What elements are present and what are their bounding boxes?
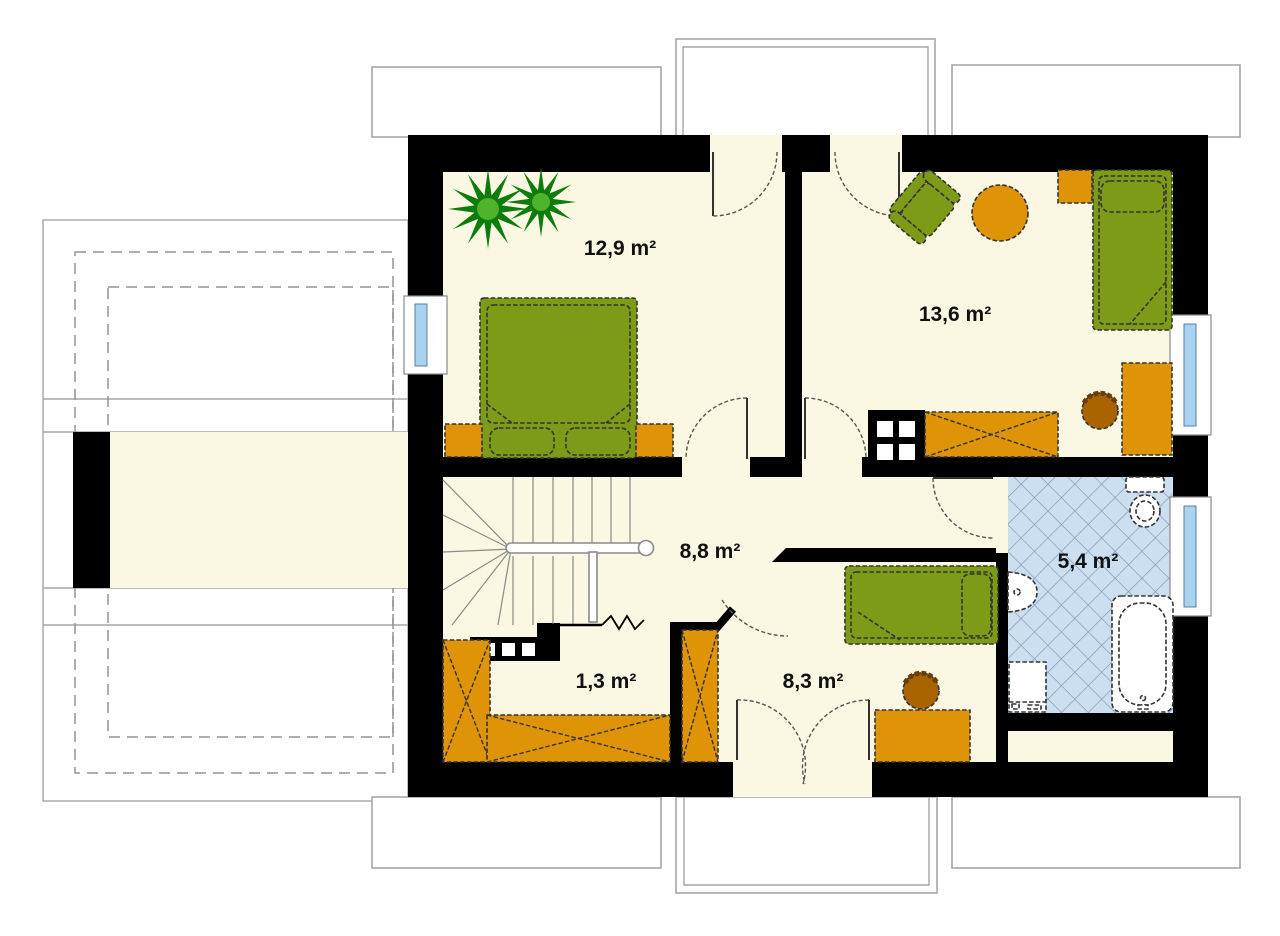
- wardrobe-top-right: [925, 412, 1058, 457]
- wall-right-middle: [1173, 432, 1208, 498]
- dormer-bottom: [676, 797, 937, 893]
- wall-top-right: [902, 135, 1208, 172]
- desk-bottom: [875, 710, 970, 762]
- chimney: [868, 410, 925, 477]
- chimney-flue: [877, 444, 893, 460]
- wardrobe-closet-vertical: [443, 640, 490, 762]
- desk-chair-bottom: [903, 673, 939, 709]
- wall-hall-top-left: [408, 457, 682, 477]
- nightstand: [1058, 170, 1092, 203]
- wall-room83-top: [772, 548, 996, 562]
- chimney-flue: [899, 421, 915, 437]
- roof-plane-top-left: [372, 67, 661, 137]
- parapet-opening: [502, 643, 515, 656]
- window-right-bathroom: [1170, 497, 1211, 616]
- floor-plan-drawing: 12,9 m² 13,6 m² 8,8 m² 5,4 m² 1,3 m² 8,3…: [0, 0, 1280, 936]
- window-left: [404, 296, 447, 374]
- nightstand: [445, 424, 482, 457]
- room-label-hall: 8,8 m²: [680, 540, 741, 563]
- floor-plan-page: 12,9 m² 13,6 m² 8,8 m² 5,4 m² 1,3 m² 8,3…: [0, 0, 1280, 936]
- wall-left-upper: [408, 135, 443, 298]
- room-label-bedroom-top-left: 12,9 m²: [584, 237, 656, 260]
- room-label-closet: 1,3 m²: [576, 670, 637, 693]
- wall-top-pier: [782, 135, 830, 172]
- double-bed: [480, 298, 637, 458]
- nightstand: [636, 424, 673, 457]
- wall-left-lower: [408, 372, 443, 797]
- room-label-bathroom: 5,4 m²: [1058, 550, 1119, 573]
- wardrobe-room83: [682, 630, 718, 762]
- roof-plane-top-right: [952, 65, 1240, 137]
- wall-bedroom-divider: [785, 172, 802, 477]
- desk-chair-top: [1082, 393, 1118, 429]
- wall-bottom-left: [408, 762, 733, 797]
- stair-inner-rail: [589, 552, 597, 622]
- chimney-flue: [877, 421, 893, 437]
- stair-parapet-stub: [537, 623, 560, 661]
- roof-plane-bottom-right: [952, 797, 1240, 868]
- chimney-flue: [899, 444, 915, 460]
- round-table: [972, 185, 1028, 241]
- wall-bathroom-bottom: [1008, 713, 1173, 731]
- washing-machine-icon: [1009, 662, 1046, 712]
- stair-handrail: [506, 543, 646, 553]
- wall-top-left: [408, 135, 710, 172]
- single-bed-bottom: [845, 566, 998, 644]
- bathtub-icon: [1112, 596, 1173, 712]
- dormer-top: [676, 39, 935, 137]
- wardrobe-closet-horizontal: [487, 715, 670, 762]
- roof-plane-bottom-left: [372, 797, 661, 868]
- single-bed-top: [1093, 170, 1172, 330]
- desk-top-right: [1122, 363, 1172, 455]
- terrace-floor: [110, 432, 408, 588]
- parapet-opening: [522, 643, 535, 656]
- room-label-bedroom-top-right: 13,6 m²: [919, 303, 991, 326]
- wall-room83-left: [670, 622, 682, 762]
- room-label-bedroom-bottom: 8,3 m²: [783, 670, 844, 693]
- wall-right-upper: [1173, 135, 1208, 318]
- window-right-bedroom: [1170, 315, 1211, 435]
- terrace-parapet-wall: [73, 432, 110, 588]
- wall-bottom-right: [872, 762, 1208, 797]
- stair-newel: [639, 541, 654, 556]
